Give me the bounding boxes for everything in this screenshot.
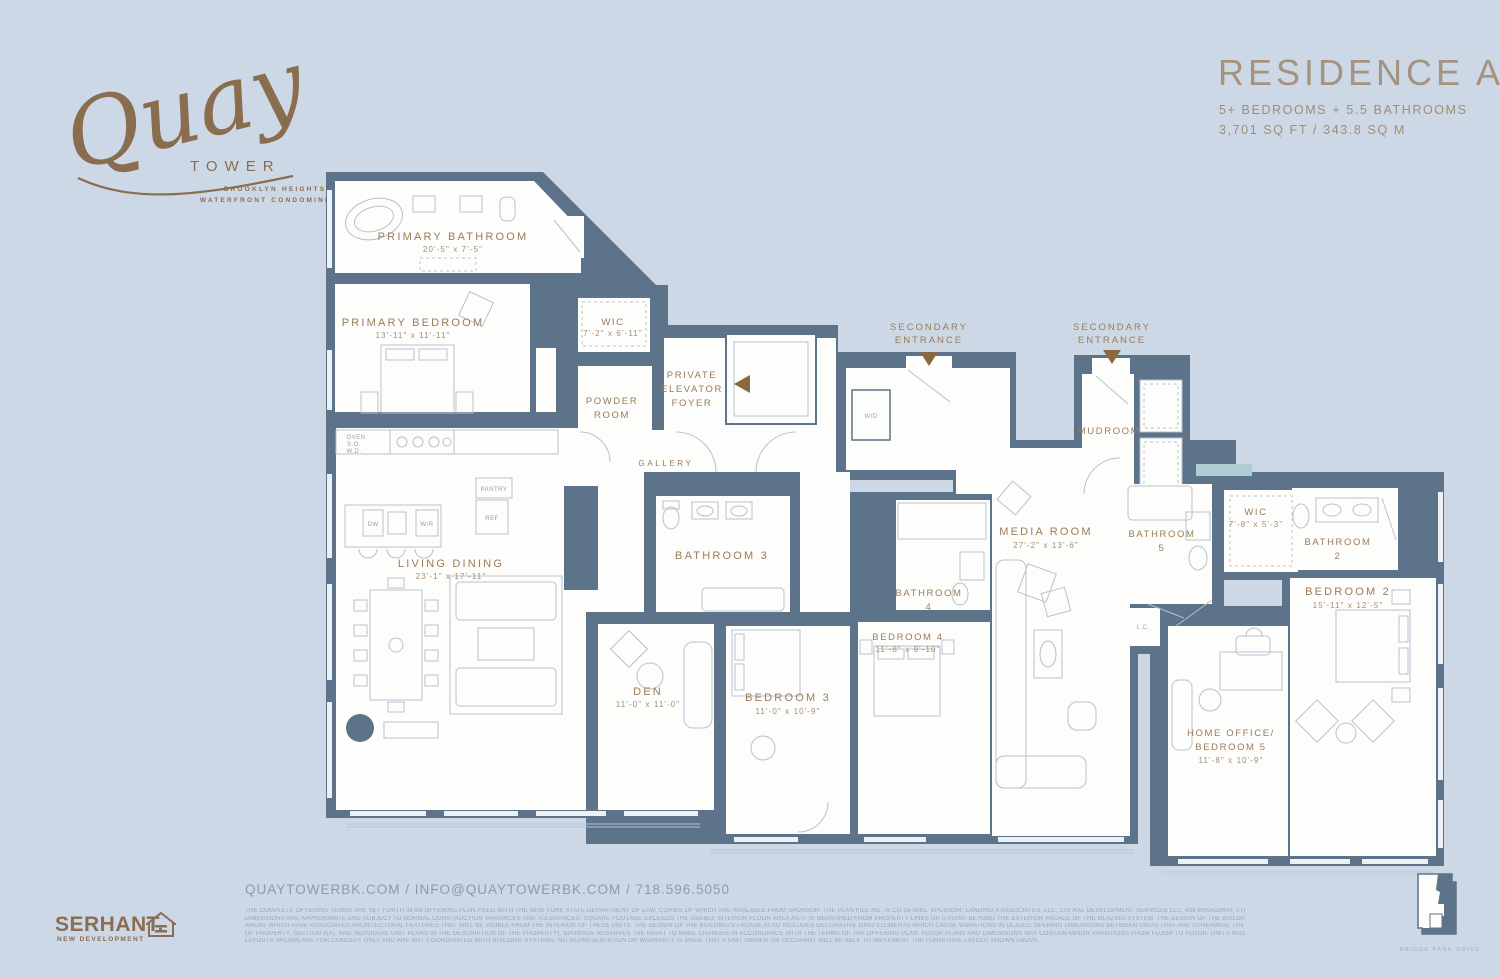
label-home-office-1: HOME OFFICE/ — [1187, 728, 1275, 739]
label-mudroom: MUDROOM — [1078, 426, 1140, 437]
label-secondary-entrance-1b: ENTRANCE — [895, 335, 963, 346]
label-so: S.O. — [347, 442, 361, 448]
label-foyer-1: PRIVATE — [667, 370, 717, 381]
label-powder-room-2: ROOM — [594, 410, 630, 421]
label-powder-room-1: POWDER — [586, 396, 638, 407]
disclaimer-line-2: DIMENSIONS ARE APPROXIMATE AND SUBJECT T… — [245, 916, 1245, 924]
label-bathroom-4-1: BATHROOM — [896, 588, 963, 599]
logo-tower-word: TOWER — [190, 158, 281, 175]
label-primary-bedroom: PRIMARY BEDROOM — [342, 317, 485, 329]
label-bathroom-5-2: 5 — [1159, 543, 1166, 554]
mudroom-closet-1 — [1140, 380, 1182, 432]
label-secondary-entrance-2b: ENTRANCE — [1078, 335, 1146, 346]
dims-den: 11'-0" x 11'-0" — [616, 700, 681, 709]
dims-bedroom-4: 11'-8" x 9'-10" — [875, 645, 940, 654]
contact-line: QUAYTOWERBK.COM / INFO@QUAYTOWERBK.COM /… — [245, 882, 730, 897]
label-gallery: GALLERY — [639, 459, 694, 468]
dims-primary-bathroom: 20'-5" x 7'-5" — [423, 245, 483, 254]
dims-bedroom-3: 11'-0" x 10'-9" — [755, 707, 820, 716]
dims-living-dining: 23'-1" x 17'-11" — [416, 572, 487, 581]
disclaimer-line-3: AREAS WHICH HAVE ASSOCIATED ARCHITECTURA… — [245, 923, 1245, 931]
mudroom-closet-2 — [1140, 438, 1182, 490]
label-wic-primary: WIC — [601, 317, 624, 328]
equal-housing-icon — [146, 912, 176, 940]
label-secondary-entrance-2a: SECONDARY — [1073, 322, 1151, 333]
label-primary-bathroom: PRIMARY BATHROOM — [378, 231, 529, 243]
label-bedroom-4: BEDROOM 4 — [872, 632, 943, 643]
elevator-shaft — [726, 334, 816, 424]
dims-media-room: 27'-2" x 13'-6" — [1013, 541, 1079, 550]
label-bedroom-2: BEDROOM 2 — [1305, 586, 1391, 598]
structural-pillar — [564, 486, 598, 590]
serhant-sub-label: NEW DEVELOPMENT — [57, 936, 144, 943]
dims-wic-primary: 7'-2" x 6'-11" — [583, 329, 643, 338]
dims-home-office: 11'-8" x 10'-9" — [1198, 756, 1263, 765]
label-bathroom-3: BATHROOM 3 — [675, 550, 769, 562]
dims-primary-bedroom: 13'-11" x 11'-11" — [375, 331, 450, 340]
label-bathroom-2-1: BATHROOM — [1305, 537, 1372, 548]
disclaimer-line-1: THE COMPLETE OFFERING TERMS ARE SET FORT… — [245, 908, 1245, 916]
keyplan-caption: BRIDGE PARK DRIVE — [1380, 947, 1500, 953]
dims-wic-2: 7'-8" x 5'-3" — [1229, 520, 1284, 529]
quay-tower-logo: Quay TOWER BROOKLYN HEIGHTS WATERFRONT C… — [38, 28, 338, 213]
label-dw: DW — [368, 522, 379, 528]
label-bedroom-3: BEDROOM 3 — [745, 692, 831, 704]
label-oven: OVEN — [346, 435, 365, 441]
label-wd-kitchen: W.D. — [347, 449, 362, 455]
label-home-office-2: BEDROOM 5 — [1195, 742, 1266, 753]
label-bathroom-2-2: 2 — [1335, 551, 1342, 562]
label-wd: W/D — [864, 414, 877, 420]
label-den: DEN — [633, 686, 663, 698]
residence-subtitle: 5+ BEDROOMS + 5.5 BATHROOMS — [1219, 103, 1468, 117]
label-ref: REF — [485, 516, 499, 522]
disclaimer-line-5: LAYOUTS SHOWN ARE FOR CONCEPT ONLY AND A… — [245, 938, 1245, 946]
label-secondary-entrance-1a: SECONDARY — [890, 322, 968, 333]
label-wic-2: WIC — [1244, 507, 1267, 518]
label-lc: L.C. — [1136, 625, 1149, 631]
label-bathroom-5-1: BATHROOM — [1129, 529, 1196, 540]
label-wr: W/R — [420, 522, 433, 528]
keyplan-icon — [1406, 872, 1466, 942]
label-pantry: PANTRY — [481, 487, 508, 493]
disclaimer-line-4: OF PROPERTY, SECTION 9(A), AND INDIVIDUA… — [245, 931, 1245, 939]
residence-title: RESIDENCE A/E — [1218, 52, 1500, 94]
label-bathroom-4-2: 4 — [926, 602, 933, 613]
dims-bedroom-2: 15'-11" x 12'-5" — [1313, 601, 1384, 610]
label-media-room: MEDIA ROOM — [999, 526, 1093, 538]
floor-plan: PRIMARY BATHROOM 20'-5" x 7'-5" PRIMARY … — [318, 160, 1458, 875]
logo-tagline-1: BROOKLYN HEIGHTS — [224, 186, 327, 193]
glazing-accent — [1196, 464, 1252, 476]
label-living-dining: LIVING DINING — [398, 558, 504, 570]
residence-area: 3,701 SQ FT / 343.8 SQ M — [1219, 123, 1406, 137]
brochure-page: { "logo": { "script": "Quay", "tower": "… — [0, 0, 1500, 978]
label-foyer-3: FOYER — [672, 398, 713, 409]
label-foyer-2: ELEVATOR — [661, 384, 723, 395]
